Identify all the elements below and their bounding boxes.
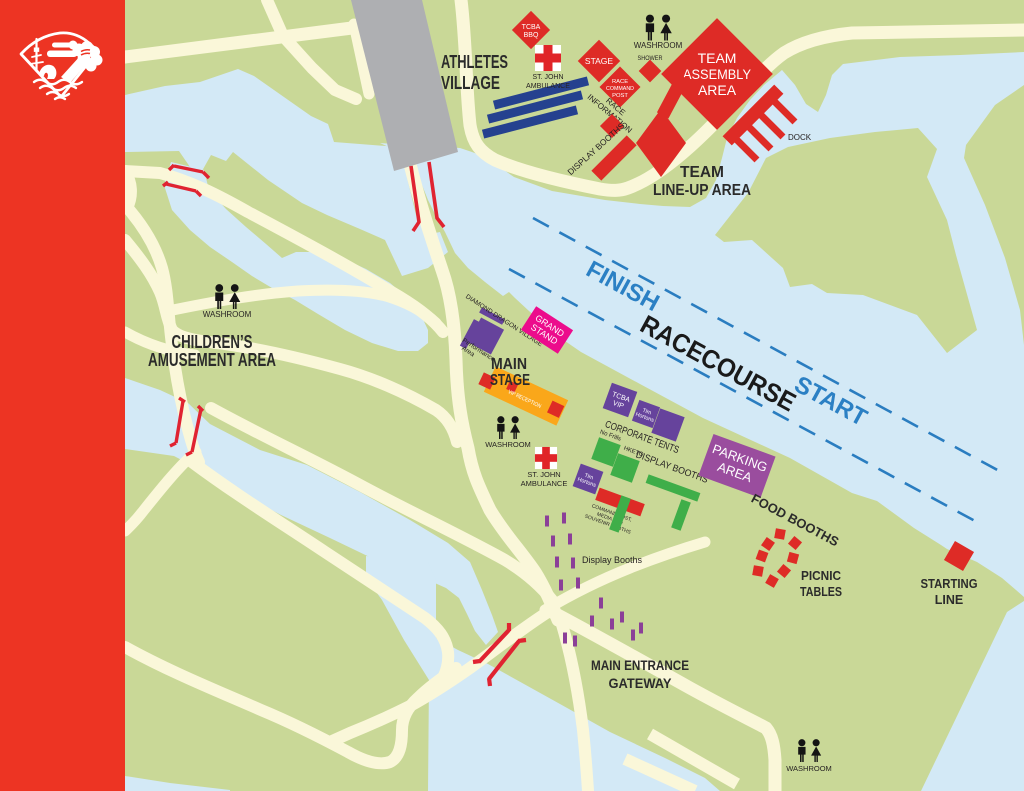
svg-text:DOCK: DOCK [788,133,812,142]
svg-text:MAIN ENTRANCE: MAIN ENTRANCE [591,657,689,673]
svg-text:Display Booths: Display Booths [582,555,643,565]
svg-text:MAIN: MAIN [491,356,527,373]
svg-text:TABLES: TABLES [800,585,842,599]
svg-text:CHILDREN’S: CHILDREN’S [172,332,253,352]
svg-text:WASHROOM: WASHROOM [203,310,252,319]
svg-text:ST. JOHN: ST. JOHN [533,72,564,81]
svg-text:GATEWAY: GATEWAY [609,675,673,691]
svg-text:BBQ: BBQ [524,32,539,39]
svg-text:COMMAND: COMMAND [606,86,634,92]
svg-text:STAGE: STAGE [585,56,614,66]
svg-text:RACE: RACE [612,79,628,85]
svg-text:AREA: AREA [698,82,737,98]
svg-text:LINE: LINE [935,593,963,607]
svg-text:POST: POST [612,93,628,99]
svg-text:TCBA: TCBA [522,24,541,31]
svg-text:AMUSEMENT AREA: AMUSEMENT AREA [148,350,276,370]
svg-text:LINE-UP AREA: LINE-UP AREA [653,182,751,199]
svg-text:STARTING: STARTING [921,577,978,591]
svg-text:AMBULANCE: AMBULANCE [526,81,570,90]
svg-text:STAGE: STAGE [490,372,530,389]
svg-text:ST. JOHN: ST. JOHN [527,470,560,479]
svg-text:ASSEMBLY: ASSEMBLY [683,66,752,82]
svg-text:PICNIC: PICNIC [801,569,841,583]
svg-text:WASHROOM: WASHROOM [485,440,531,449]
svg-text:TEAM: TEAM [698,50,737,66]
svg-text:VILLAGE: VILLAGE [441,73,500,93]
svg-text:TEAM: TEAM [680,164,724,181]
svg-text:AMBULANCE: AMBULANCE [521,479,568,488]
svg-text:WASHROOM: WASHROOM [634,41,683,50]
svg-text:ATHLETES: ATHLETES [441,52,508,72]
svg-text:WASHROOM: WASHROOM [786,764,832,773]
